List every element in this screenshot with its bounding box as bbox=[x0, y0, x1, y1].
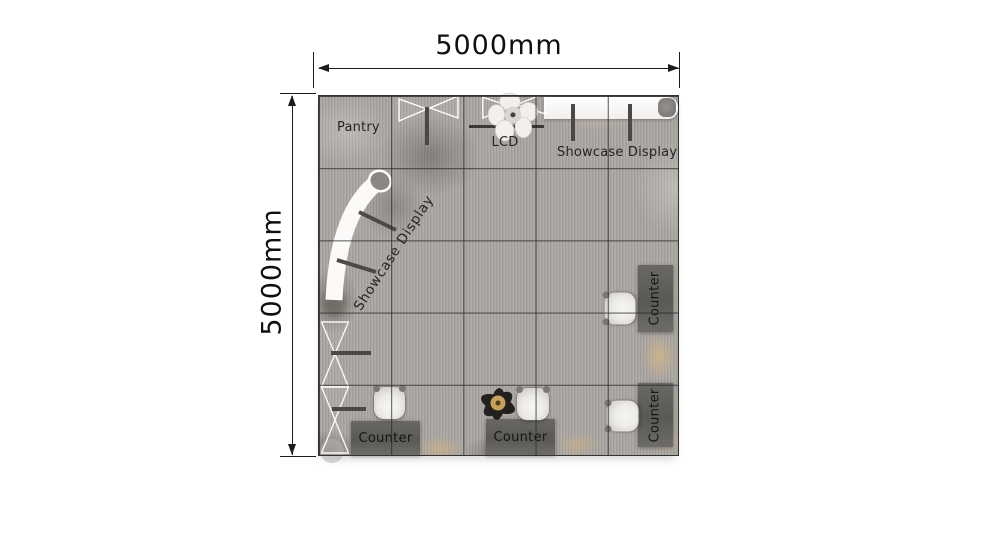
arrowhead-right-icon bbox=[668, 64, 679, 72]
counter-label: Counter bbox=[493, 430, 547, 445]
extension-line-left-top bbox=[280, 93, 316, 94]
chair-icon bbox=[517, 388, 549, 420]
shelf-end-cap-icon bbox=[658, 98, 676, 117]
wall-bar bbox=[332, 407, 366, 411]
floorplan-canvas: 5000mm 5000mm bbox=[0, 0, 1000, 533]
person-icon bbox=[478, 384, 518, 425]
showcase-stand-bar bbox=[571, 104, 575, 141]
extension-line-top-left bbox=[313, 52, 314, 88]
lcd-label: LCD bbox=[476, 135, 534, 150]
extension-line-left-bottom bbox=[280, 456, 316, 457]
dimension-top-line bbox=[319, 68, 679, 69]
arrowhead-up-icon bbox=[288, 95, 296, 106]
display-stand-bar bbox=[425, 107, 429, 145]
chair-icon bbox=[607, 401, 639, 432]
counter-label: Counter bbox=[358, 431, 412, 446]
showcase-stand-bar bbox=[628, 104, 632, 141]
counter-label: Counter bbox=[648, 388, 663, 442]
showcase-shelf bbox=[544, 97, 678, 119]
dimension-left-line bbox=[292, 96, 293, 455]
chair-icon bbox=[374, 387, 405, 419]
pantry-label: Pantry bbox=[337, 120, 380, 135]
wall-bar bbox=[331, 351, 371, 355]
truss-triangles-icon bbox=[320, 321, 350, 461]
dimension-top-label: 5000mm bbox=[318, 30, 680, 61]
arrowhead-left-icon bbox=[318, 64, 329, 72]
counter-right-upper: Counter bbox=[638, 265, 673, 332]
booth-plan: Counter Counter Counter Counter bbox=[318, 95, 679, 456]
counter-right-lower: Counter bbox=[638, 383, 673, 447]
chair-icon bbox=[605, 293, 636, 325]
dimension-left-label: 5000mm bbox=[257, 208, 288, 335]
showcase-display-label: Showcase Display bbox=[557, 145, 677, 160]
counter-label: Counter bbox=[648, 271, 663, 325]
counter-bottom-left: Counter bbox=[351, 421, 420, 455]
arrowhead-down-icon bbox=[288, 444, 296, 455]
extension-line-top-right bbox=[679, 52, 680, 88]
